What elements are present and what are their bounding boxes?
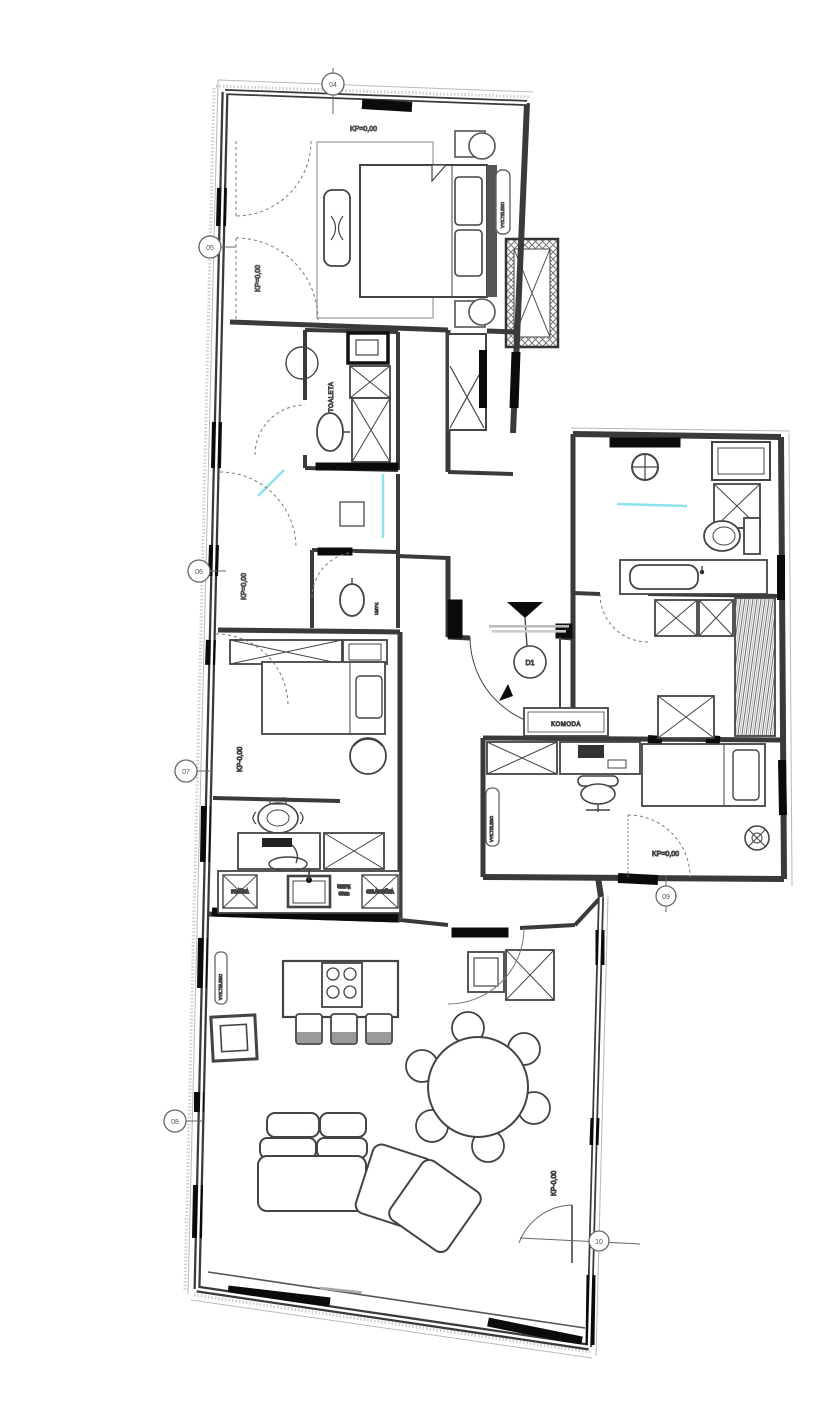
wc: UMYV. (312, 552, 379, 616)
closet-door-arcs (236, 141, 318, 320)
svg-text:08: 08 (171, 1119, 179, 1126)
bath-sink (630, 565, 698, 589)
double-bed (360, 165, 497, 297)
dining-set (406, 1012, 550, 1162)
door-arc (220, 472, 296, 548)
kitchen-island (283, 961, 398, 1017)
door-note-smudge (492, 630, 566, 633)
door-note-smudge (489, 625, 569, 628)
pot-symbol (253, 798, 303, 833)
bar-stools (296, 1014, 392, 1044)
svg-text:VYK.TELESO: VYK.TELESO (489, 815, 494, 842)
room-label: TOALETA (329, 382, 335, 412)
radiator-label: VYK.TELESO (500, 201, 505, 228)
door-arc (255, 405, 305, 455)
master-bedroom: VYK.TELESO KP=0,00 KP=0,00 (236, 126, 510, 327)
level-label: KP=0,00 (241, 573, 248, 600)
svg-text:09: 09 (662, 894, 670, 901)
level-label: KP-0,00 (237, 747, 244, 772)
level-label: KP-0,00 (551, 1171, 558, 1196)
pillow (455, 177, 482, 225)
wc-sink-label: UMYV. (374, 602, 379, 615)
door-arc (628, 815, 690, 877)
level-label: KP=0,00 (255, 265, 262, 292)
entrance-arrow (507, 602, 543, 618)
floor-plan-page: VYK.TELESO KP=0,00 KP=0,00 TOALETA K (0, 0, 836, 1406)
cabinet (348, 333, 388, 363)
living-radiator: VYK.TELESO (215, 952, 227, 1004)
svg-text:06: 06 (195, 569, 203, 576)
komoda-dresser: KOMODA (524, 708, 608, 736)
kitchen: PRÁČKA UMYV. 60cm CHLADNIČKA (218, 798, 400, 913)
level-label: KP=0,00 (350, 126, 377, 133)
wc-basin (340, 584, 364, 616)
sofa (258, 1113, 484, 1256)
toilet (704, 518, 760, 554)
desk (560, 742, 640, 774)
door-tag: D1 (526, 660, 535, 667)
accent-lines (258, 470, 687, 538)
radiator: VYK.TELESO (486, 788, 499, 846)
svg-text:05: 05 (206, 245, 214, 252)
bathroom (600, 442, 775, 738)
washer-label: PRÁČKA (231, 889, 248, 894)
bath-counter (620, 560, 767, 594)
svg-text:04: 04 (329, 82, 337, 89)
floor-plan-canvas: VYK.TELESO KP=0,00 KP=0,00 TOALETA K (0, 0, 836, 1406)
dishwasher-label: UMYV. (338, 884, 351, 889)
single-bed (642, 744, 765, 806)
living-room: VYK.TELESO KP-0,00 (208, 928, 585, 1328)
komoda-label: KOMODA (551, 722, 581, 728)
pillow (733, 750, 759, 800)
tv-cabinet (211, 1015, 257, 1061)
shaft-column (448, 334, 487, 430)
door-arc (600, 594, 648, 642)
ceiling-symbol (745, 826, 769, 850)
fridge-label: CHLADNIČKA (367, 889, 394, 894)
bedroom2: KP-0,00 (216, 634, 387, 774)
shaft-boxes (468, 950, 554, 1000)
level-label: KP=0,00 (652, 851, 679, 858)
toilet-room: TOALETA (255, 333, 390, 462)
entrance-arrow-tip (499, 684, 513, 701)
wardrobe-hatched (735, 598, 775, 736)
work-desk (238, 833, 320, 871)
svg-text:10: 10 (595, 1239, 603, 1246)
hall-box (340, 502, 364, 526)
laptop (578, 745, 604, 758)
pillow (455, 230, 482, 276)
round-chair (350, 738, 386, 774)
laptop (262, 838, 292, 847)
pillow (356, 676, 382, 718)
kitchen-counter: PRÁČKA UMYV. 60cm CHLADNIČKA (218, 868, 400, 913)
hallway: KP=0,00 (220, 472, 364, 600)
svg-text:07: 07 (182, 769, 190, 776)
svg-text:60cm: 60cm (339, 891, 350, 896)
bedroom-radiator: VYK.TELESO (496, 170, 510, 234)
balcony-door (519, 1205, 572, 1263)
komoda-room: KOMODA VYK.TELESO KP=0,0 (486, 708, 769, 877)
washbasin (317, 413, 343, 451)
office-chair (578, 776, 618, 812)
dining-table (428, 1037, 528, 1137)
svg-text:VYK.TELESO: VYK.TELESO (218, 973, 223, 1000)
bench (324, 190, 350, 266)
ceiling-lamp (286, 347, 318, 379)
